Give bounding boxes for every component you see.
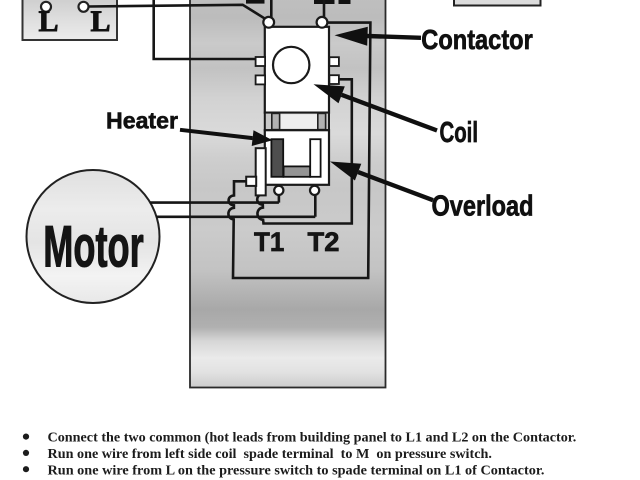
svg-text:Run one wire from left side co: Run one wire from left side coil spade t… [48,447,492,462]
svg-text:T2: T2 [308,227,340,257]
svg-text:Overload: Overload [432,189,534,221]
svg-text:T1: T1 [254,227,284,257]
svg-text:Heater: Heater [106,107,178,133]
svg-text:Connect the two common (hot le: Connect the two common (hot leads from b… [48,430,577,445]
svg-text:Run one wire from L on the pre: Run one wire from L on the pressure swit… [48,463,545,478]
svg-text:Contactor: Contactor [421,24,533,55]
svg-text:L: L [39,5,59,38]
svg-text:Coil: Coil [440,116,479,148]
svg-text:L: L [91,5,111,38]
svg-text:Motor: Motor [43,215,144,280]
